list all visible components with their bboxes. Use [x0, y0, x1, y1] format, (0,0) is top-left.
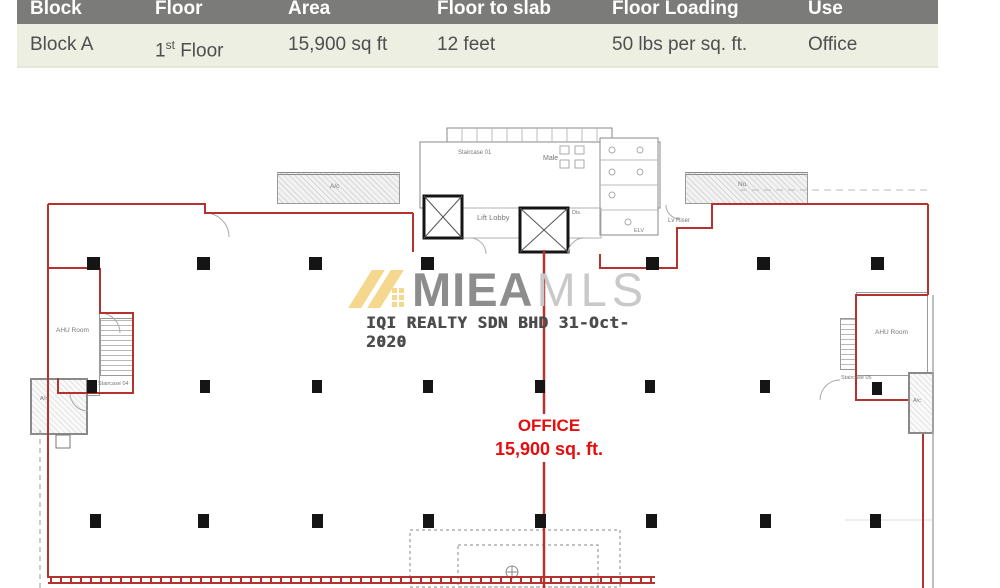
header-block: Block	[30, 0, 155, 24]
header-floor-to-slab: Floor to slab	[437, 0, 612, 24]
label-male: Male	[543, 155, 558, 162]
label-lv-riser: Lv Riser	[668, 218, 690, 224]
label-staircase-01: Staircase 01	[458, 150, 492, 156]
page: Block Floor Area Floor to slab Floor Loa…	[0, 0, 1000, 588]
header-floor-loading: Floor Loading	[612, 0, 808, 24]
label-ac-room-left: A/c	[40, 396, 48, 402]
value-floor: 1st Floor	[155, 24, 288, 72]
floor-number: 1	[155, 40, 166, 61]
label-lift-lobby: Lift Lobby	[477, 213, 510, 222]
reference-lines	[40, 190, 933, 588]
label-staircase-04: Staircase 04	[98, 381, 129, 387]
label-ac-room-right: A/c	[913, 398, 921, 404]
label-ac-ledge-left: A/c	[330, 183, 340, 190]
watermark-brand-secondary: MLS	[537, 266, 649, 313]
floor-ordinal: st	[166, 38, 175, 52]
header-area: Area	[288, 0, 437, 24]
office-area-label: OFFICE 15,900 sq. ft.	[466, 414, 632, 462]
header-use: Use	[808, 0, 938, 24]
watermark: MIEA MLS IQI REALTY SDN BHD 31-Oct-2020	[346, 266, 666, 351]
floor-plan: Staircase 01 Male Lift Lobby Dis. ELV Lv…	[0, 100, 1000, 588]
label-ahu-right: AHU Room	[875, 329, 908, 336]
office-area-value: 15,900 sq. ft.	[466, 439, 632, 460]
spec-table: Block Floor Area Floor to slab Floor Loa…	[17, 0, 938, 68]
spec-table-header: Block Floor Area Floor to slab Floor Loa…	[17, 0, 938, 24]
label-staircase-05: Staircase 05	[841, 375, 872, 381]
label-ac-ledge-right: No.	[738, 181, 748, 188]
watermark-brand-row: MIEA MLS	[346, 266, 666, 313]
label-elv: ELV	[634, 228, 644, 234]
office-title: OFFICE	[466, 416, 632, 436]
floor-word: Floor	[180, 40, 223, 61]
miea-logo-icon	[346, 270, 408, 310]
value-floor-loading: 50 lbs per sq. ft.	[612, 24, 808, 72]
label-ahu-left: AHU Room	[56, 327, 89, 334]
spec-table-row: Block A 1st Floor 15,900 sq ft 12 feet 5…	[17, 24, 938, 68]
value-use: Office	[808, 24, 938, 72]
label-dis: Dis.	[572, 210, 582, 216]
watermark-brand-primary: MIEA	[412, 266, 534, 313]
value-area: 15,900 sq ft	[288, 24, 437, 72]
value-floor-to-slab: 12 feet	[437, 24, 612, 72]
value-block: Block A	[30, 24, 155, 72]
header-floor: Floor	[155, 0, 288, 24]
watermark-agency-line: IQI REALTY SDN BHD 31-Oct-2020	[366, 313, 666, 351]
